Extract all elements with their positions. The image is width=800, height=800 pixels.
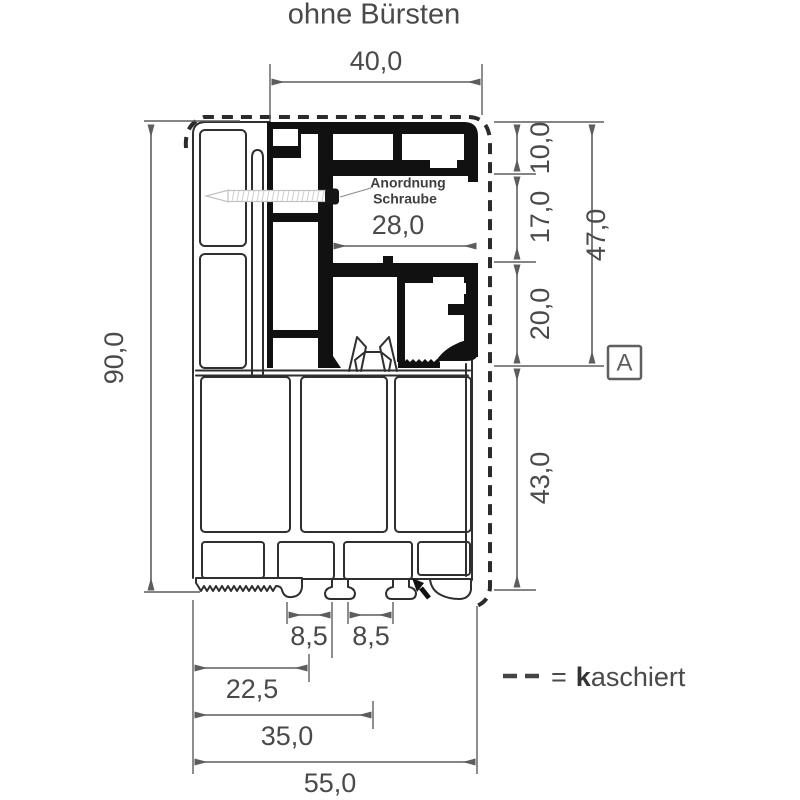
profile-section-drawing: ohne Bürsten (0, 0, 800, 800)
chamber-large-right (395, 377, 471, 532)
clip-fork (349, 337, 397, 371)
technical-drawing-page: ohne Bürsten (0, 0, 800, 800)
dim-bottom-225: 22,5 (226, 674, 279, 704)
dim-top-width: 40,0 (350, 46, 403, 76)
dim-right-43: 43,0 (525, 452, 555, 505)
dim-right-10: 10,0 (525, 122, 555, 175)
dim-gap-right: 8,5 (352, 621, 390, 651)
section-marker: A (608, 346, 641, 379)
screw-note-line2: Schraube (373, 191, 437, 207)
dim-inner-width: 28,0 (372, 210, 425, 240)
dim-bottom-55: 55,0 (304, 768, 357, 798)
dim-right-17: 17,0 (525, 191, 555, 244)
profile-foot-left (325, 579, 355, 599)
section-marker-label: A (616, 349, 632, 376)
serrated-base (196, 578, 302, 597)
profile-foot-right (386, 579, 416, 599)
chamber-large-left (201, 377, 290, 532)
dim-overall-height: 90,0 (99, 332, 129, 385)
dim-right-47: 47,0 (581, 209, 611, 262)
dim-bottom-35: 35,0 (261, 721, 314, 751)
kaschiert-legend: =kaschiert (503, 662, 686, 692)
dim-gap-left: 8,5 (290, 621, 328, 651)
screw-head (325, 189, 339, 205)
chamber-large-mid (301, 377, 387, 532)
dim-right-20: 20,0 (525, 288, 555, 341)
drawing-title: ohne Bürsten (288, 0, 461, 31)
screw-note-line1: Anordnung (370, 175, 445, 191)
profile-foot-curved (430, 579, 471, 599)
profile-thick-core (267, 122, 478, 368)
screw-annotation: Anordnung Schraube (340, 175, 446, 207)
kaschiert-legend-text: =kaschiert (551, 662, 686, 692)
